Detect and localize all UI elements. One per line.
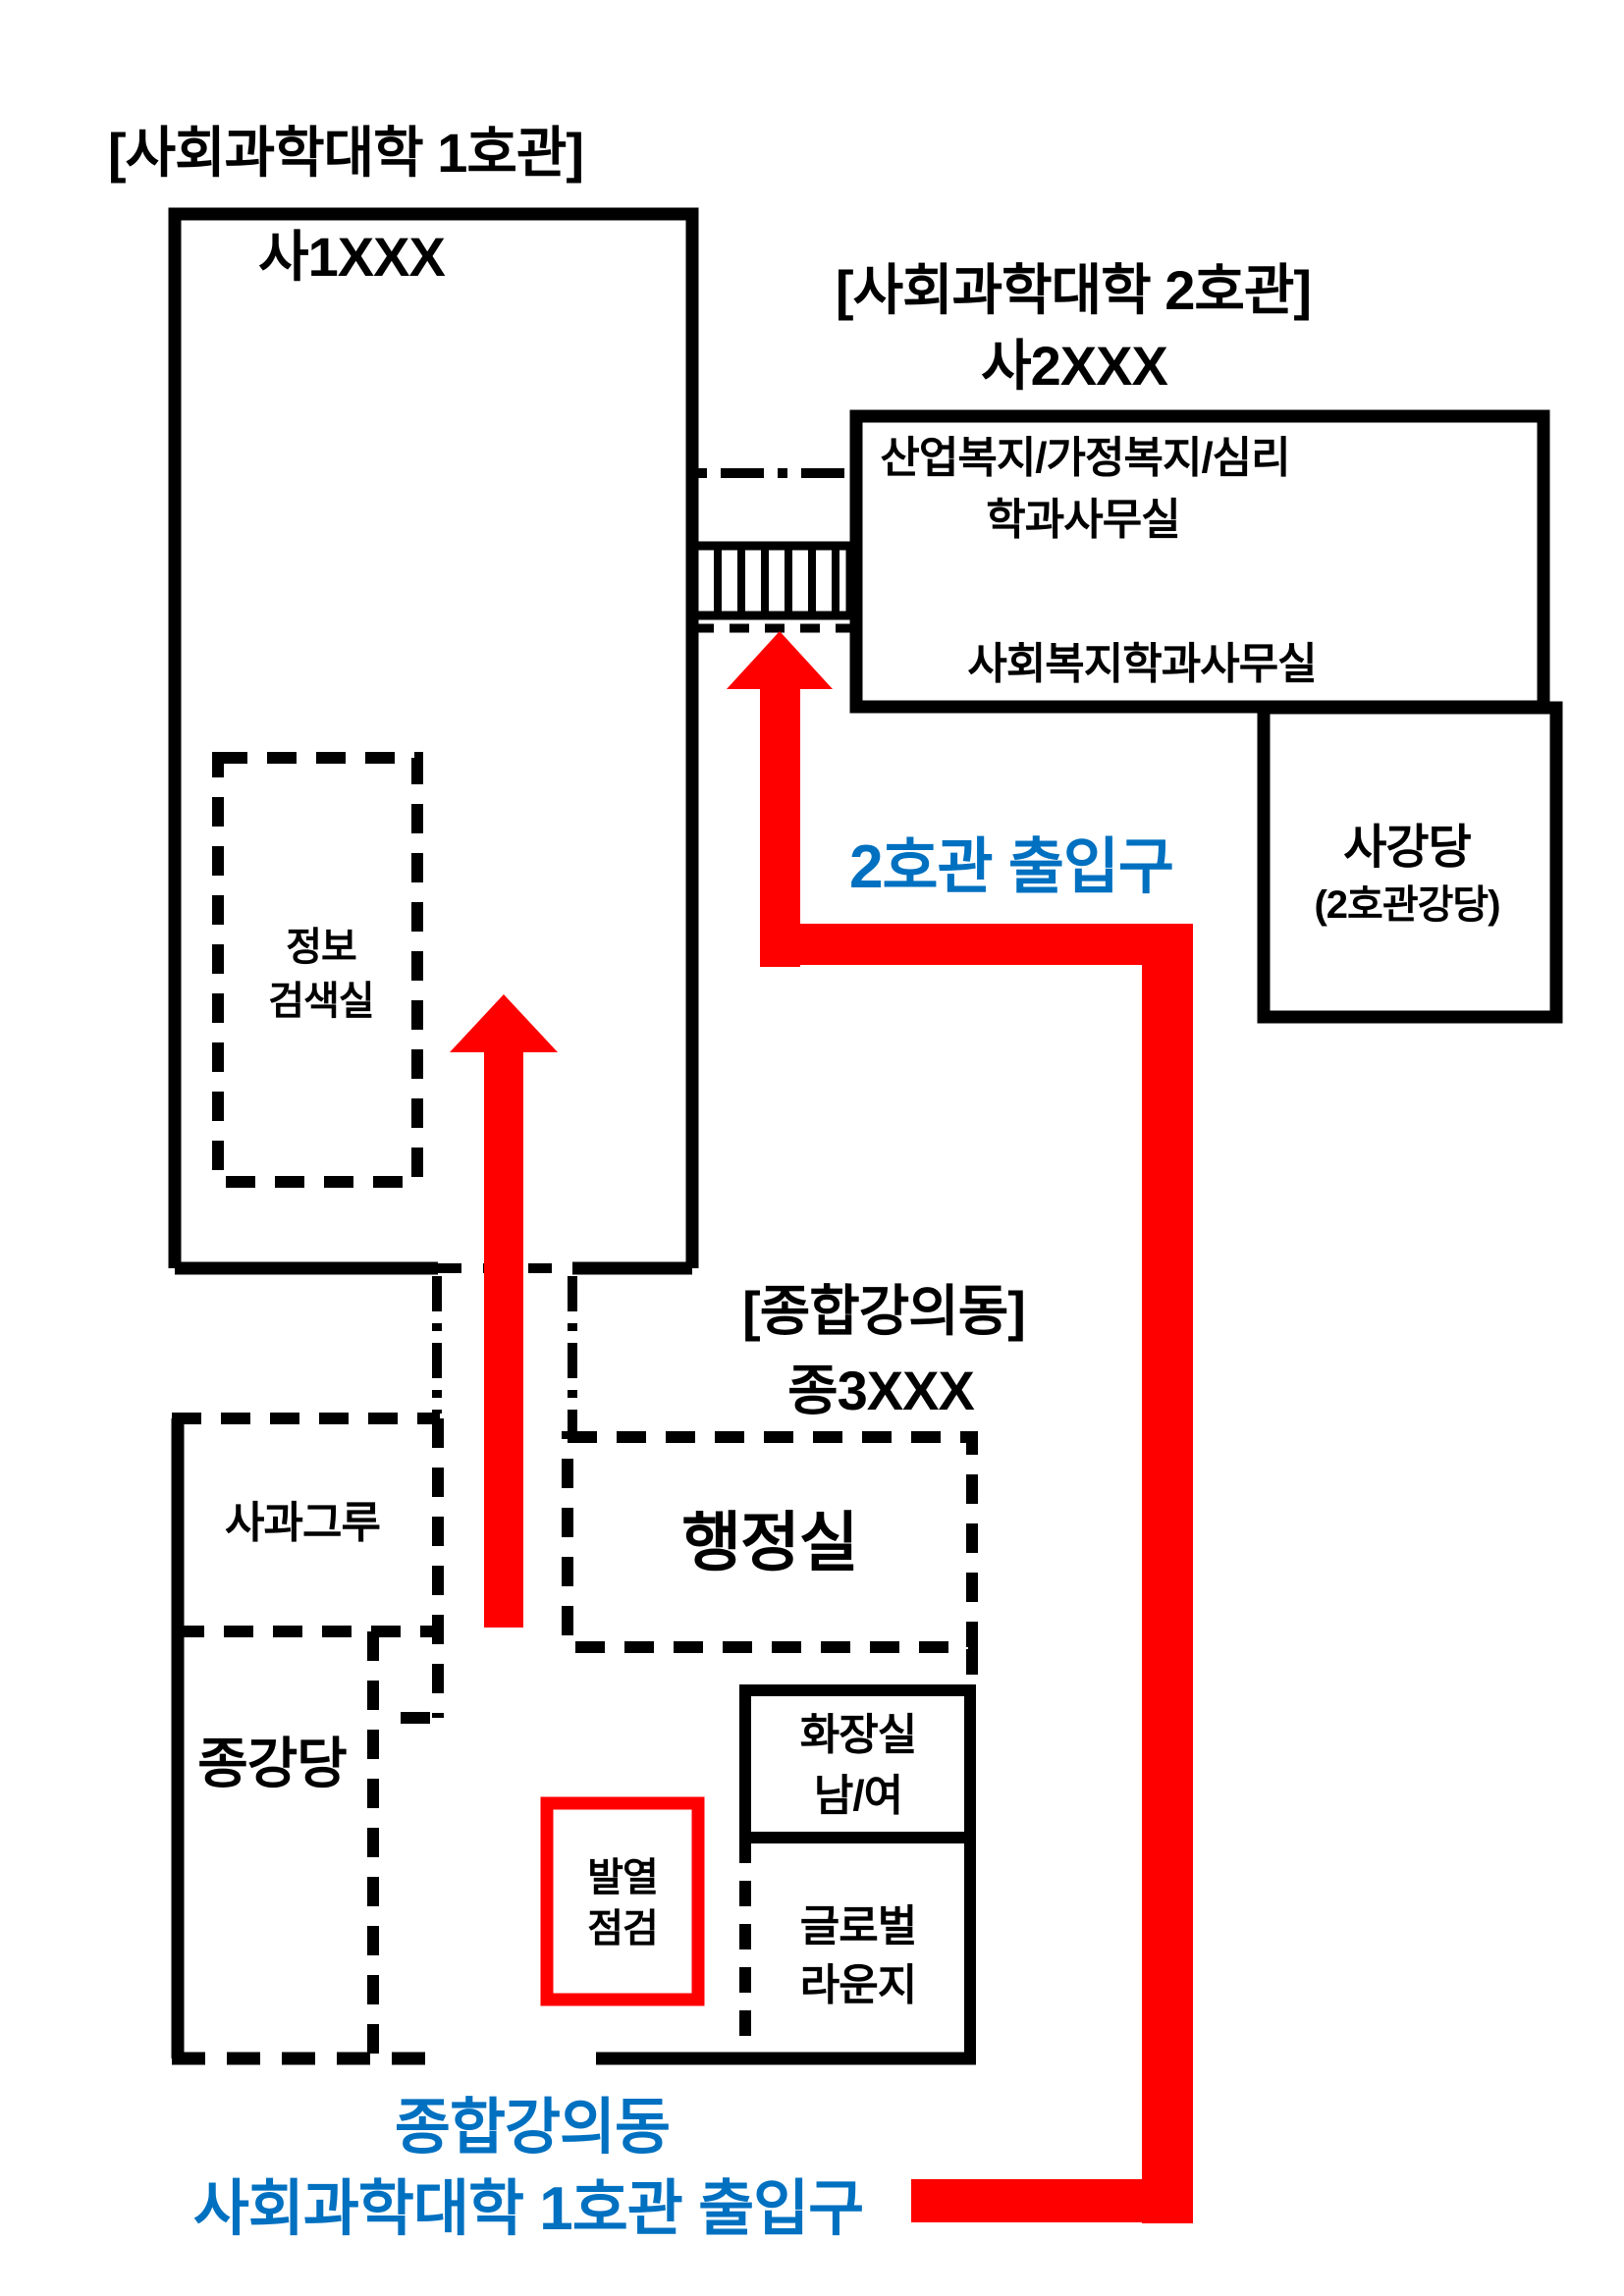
- info-room-box: [218, 758, 417, 1182]
- stairs-icon: [694, 546, 850, 615]
- fever-check-label-line1: 발열: [587, 1858, 658, 1897]
- lecture-building-code: 종3XXX: [787, 1363, 974, 1418]
- route-segment-horizontal-top: [760, 924, 1193, 965]
- lecture-building-title: [종합강의동]: [742, 1284, 1025, 1339]
- floor-plan-canvas: [0, 0, 1624, 2296]
- corridor-building1-building2: [694, 473, 852, 628]
- bottom-entrance-label-line2: 사회과학대학 1호관 출입구: [193, 2179, 863, 2240]
- jong-auditorium-label: 종강당: [197, 1736, 347, 1791]
- building1-outline: [175, 214, 692, 1268]
- global-lounge-label-line1: 글로벌: [800, 1905, 916, 1949]
- global-lounge-label-line2: 라운지: [800, 1964, 916, 2007]
- bottom-entrance-label-line1: 종합강의동: [395, 2098, 670, 2159]
- building2-entrance-label: 2호관 출입구: [849, 837, 1173, 898]
- campus-floor-plan: [사회과학대학 1호관] 사1XXX 정보 검색실 [사회과학대학 2호관] 사…: [0, 0, 1624, 2296]
- building1-code: 사1XXX: [258, 230, 445, 285]
- building2-title: [사회과학대학 2호관]: [836, 263, 1311, 318]
- building2-welfare-office-line1: 산업복지/가정복지/심리: [880, 437, 1289, 480]
- building2-code: 사2XXX: [981, 339, 1167, 394]
- building2-welfare-office-line2: 학과사무실: [986, 499, 1179, 542]
- building1-entrance-arrow: [450, 994, 558, 1628]
- building2-entrance-arrow: [727, 631, 833, 967]
- building2-social-welfare-office: 사회복지학과사무실: [967, 643, 1316, 686]
- restroom-label-line1: 화장실: [800, 1714, 916, 1757]
- info-room-label-line1: 정보: [286, 928, 356, 967]
- restroom-label-line2: 남/여: [814, 1775, 902, 1818]
- sagwa-guru-label: 사과그루: [225, 1502, 380, 1545]
- building2-auditorium-line1: 사강당: [1343, 825, 1470, 872]
- building1-title: [사회과학대학 1호관]: [108, 126, 583, 181]
- fever-check-box: [547, 1803, 698, 2000]
- info-room-label-line2: 검색실: [268, 982, 373, 1021]
- admin-office-label: 행정실: [681, 1510, 857, 1575]
- route-segment-horizontal-bottom: [911, 2179, 1193, 2222]
- fever-check-label-line2: 점검: [587, 1909, 658, 1949]
- building2-auditorium-line2: (2호관강당): [1314, 885, 1499, 925]
- route-segment-vertical: [1142, 924, 1193, 2223]
